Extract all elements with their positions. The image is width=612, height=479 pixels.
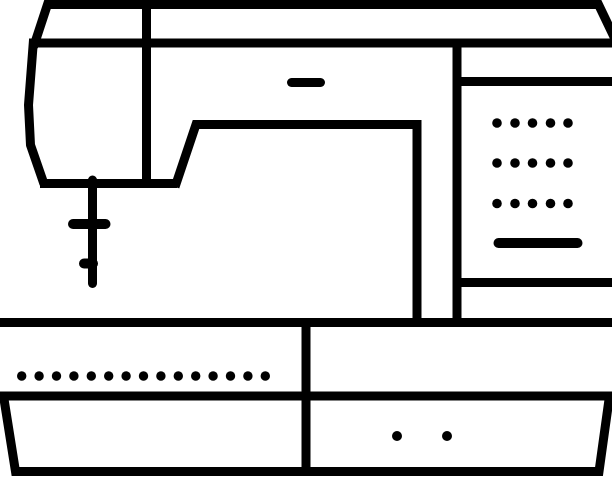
panel-dot-grid-dot (546, 199, 556, 209)
panel-dot-grid-dot (546, 158, 556, 168)
bed-dot-row-dot (156, 371, 165, 380)
bed-dot-row-dot (226, 371, 235, 380)
bed-dot-row-dot (208, 371, 217, 380)
bed-dot-row-dot (174, 371, 183, 380)
base-dot-pair-dot (392, 431, 402, 441)
panel-dot-grid-dot (563, 158, 573, 168)
panel-dot-grid-dot (492, 199, 502, 209)
panel-dot-grid-dot (510, 199, 520, 209)
panel-dot-grid-dot (492, 158, 502, 168)
sewing-machine-svg (0, 0, 612, 479)
bed-dot-row-dot (243, 371, 252, 380)
bed-dot-row-dot (104, 371, 113, 380)
bed-dot-row-dot (191, 371, 200, 380)
bed-dot-row-dot (261, 371, 270, 380)
panel-dot-grid-dot (492, 118, 502, 128)
bed-dot-row-dot (69, 371, 78, 380)
harp-cutout-outline (175, 125, 417, 328)
panel-dot-grid-dot (563, 199, 573, 209)
bed-dot-row-dot (139, 371, 148, 380)
panel-dot-grid-dot (510, 118, 520, 128)
bed-dot-row-dot (87, 371, 96, 380)
bed-dot-row-dot (52, 371, 61, 380)
panel-dot-grid-dot (528, 158, 538, 168)
base-dot-pair-dot (442, 431, 452, 441)
bed-dot-row-dot (34, 371, 43, 380)
panel-dot-grid-dot (563, 118, 573, 128)
panel-dot-grid-dot (546, 118, 556, 128)
bed-dot-row-dot (121, 371, 130, 380)
head-left-edge (29, 40, 45, 184)
bed-dot-row-dot (17, 371, 26, 380)
panel-dot-grid-dot (528, 199, 538, 209)
sewing-machine-icon (0, 0, 612, 479)
panel-dot-grid-dot (510, 158, 520, 168)
panel-dot-grid-dot (528, 118, 538, 128)
